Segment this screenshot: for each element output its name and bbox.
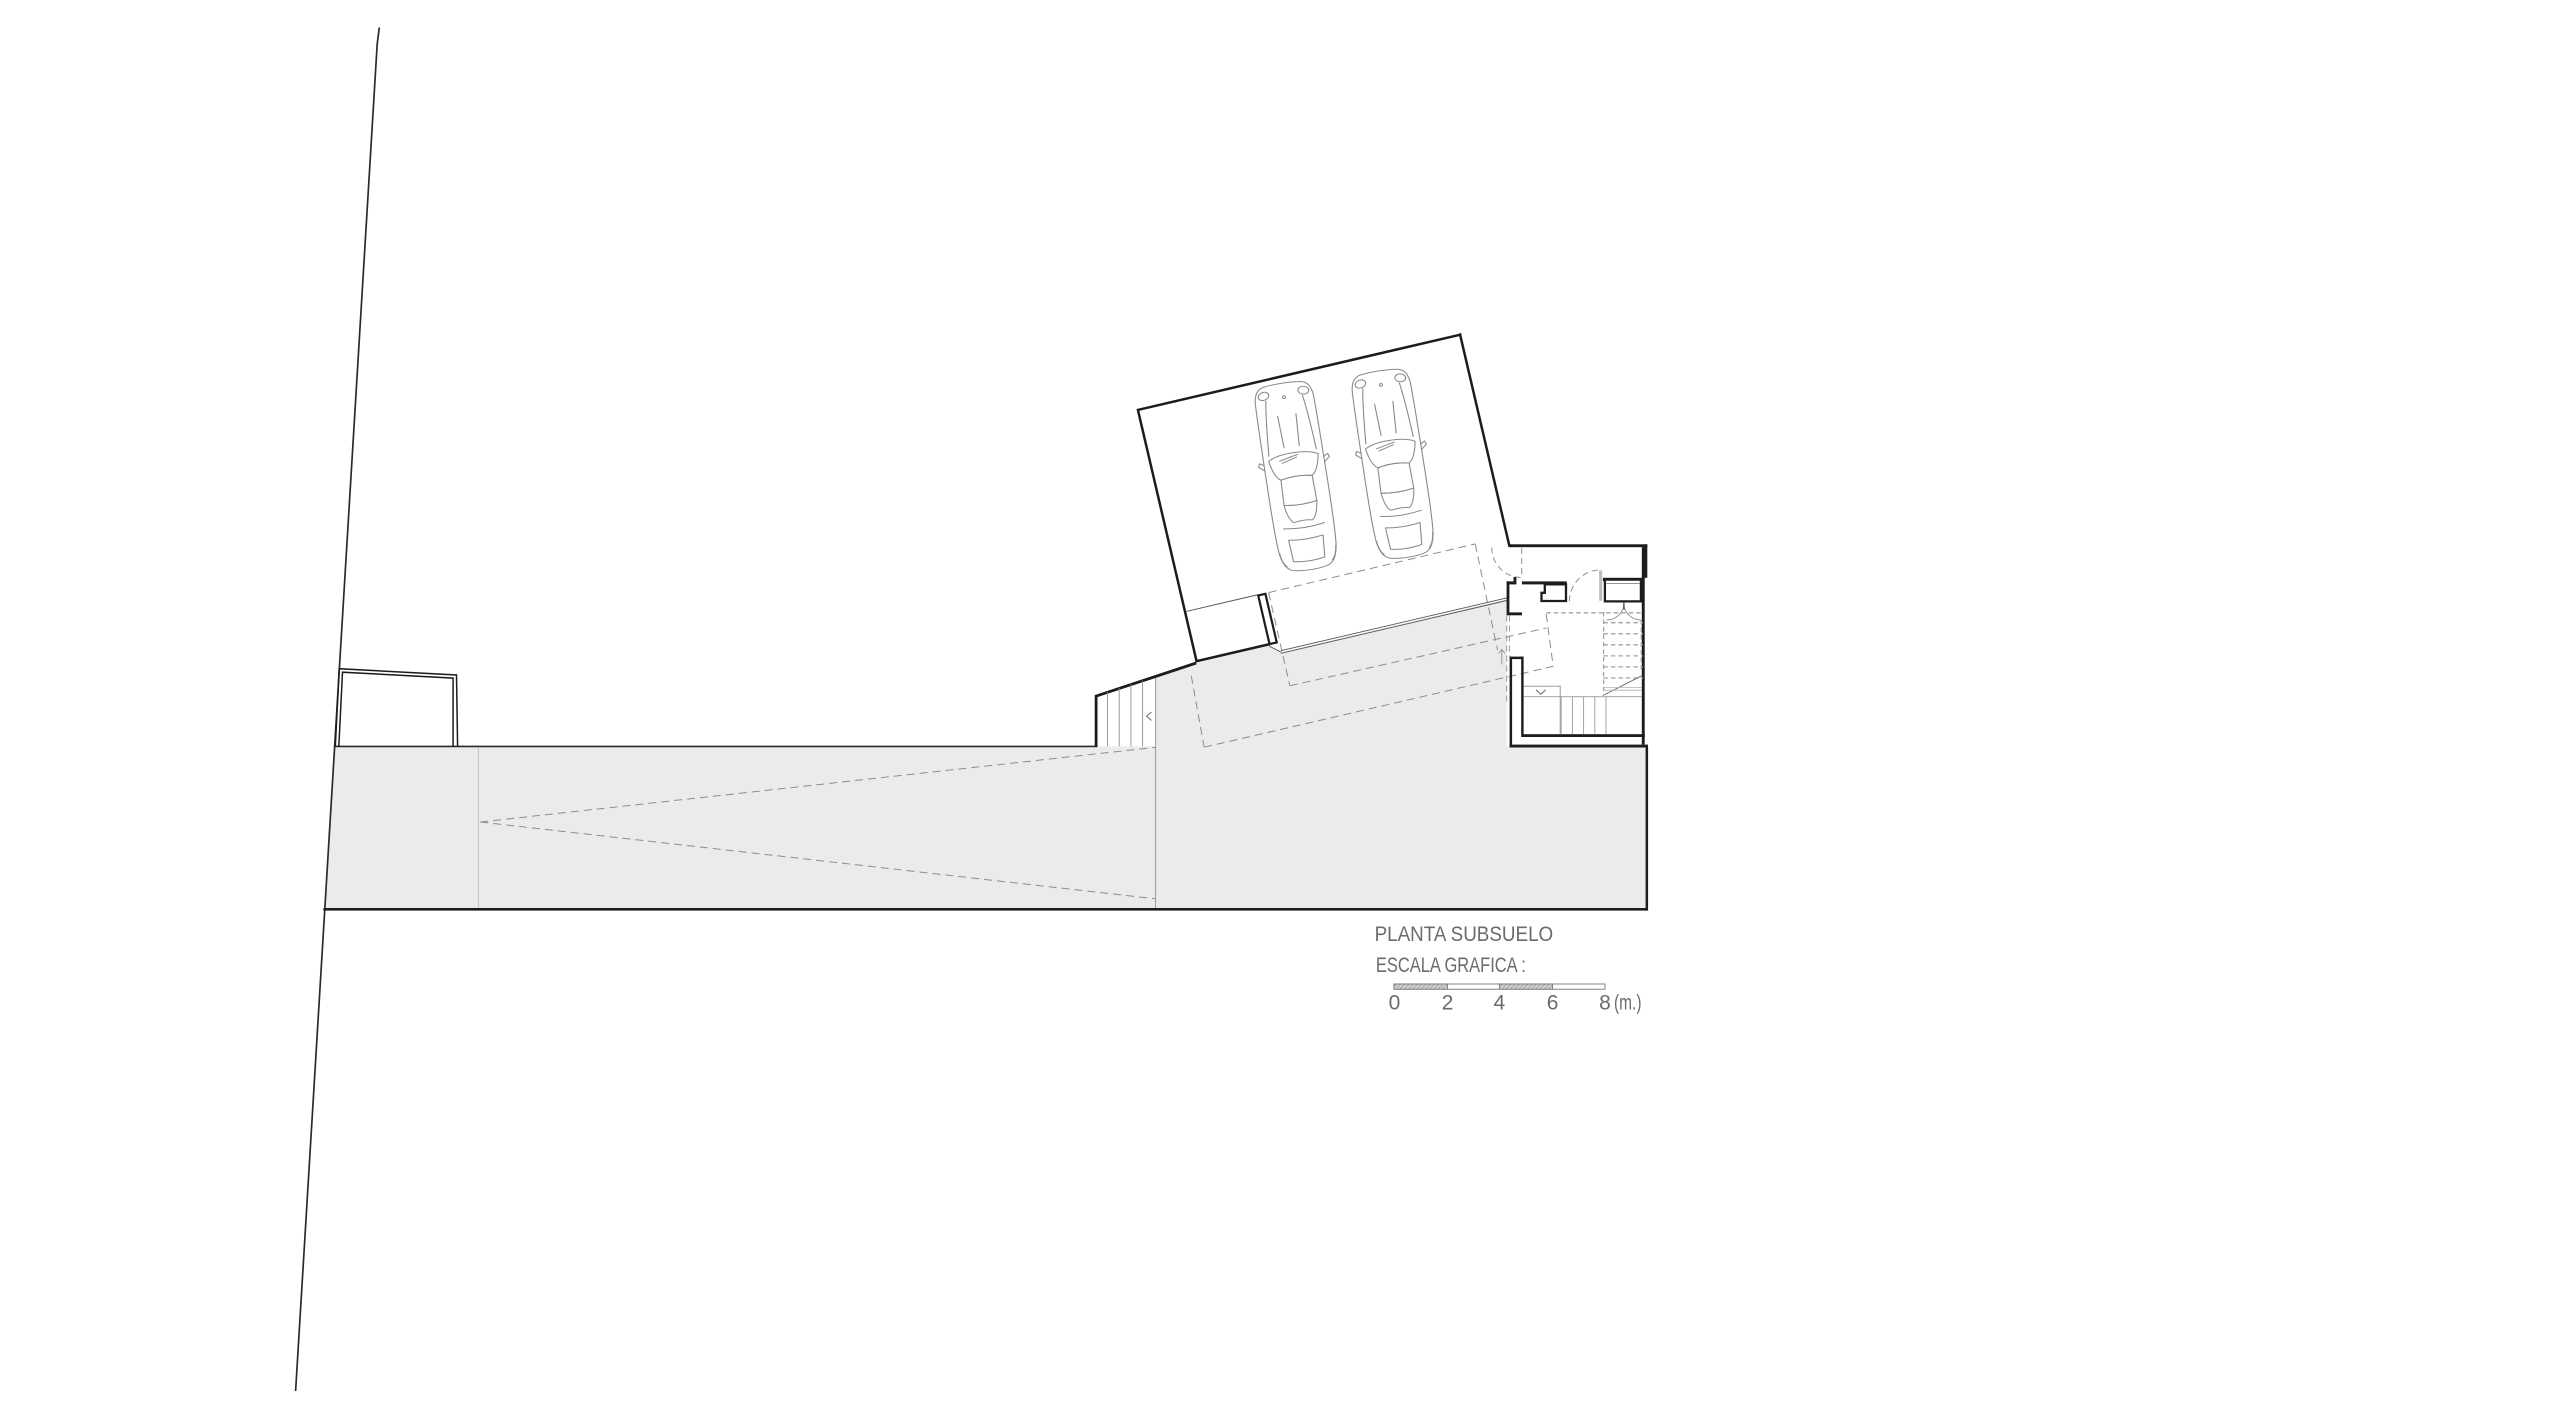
svg-text:2: 2 [1442, 992, 1454, 1015]
svg-text:PLANTA SUBSUELO: PLANTA SUBSUELO [1375, 922, 1554, 946]
svg-text:8: 8 [1599, 992, 1611, 1015]
svg-text:ESCALA GRAFICA :: ESCALA GRAFICA : [1376, 953, 1526, 977]
svg-text:(m.): (m.) [1614, 992, 1642, 1015]
svg-text:6: 6 [1547, 992, 1559, 1015]
svg-text:4: 4 [1494, 992, 1506, 1015]
svg-text:0: 0 [1389, 992, 1401, 1015]
